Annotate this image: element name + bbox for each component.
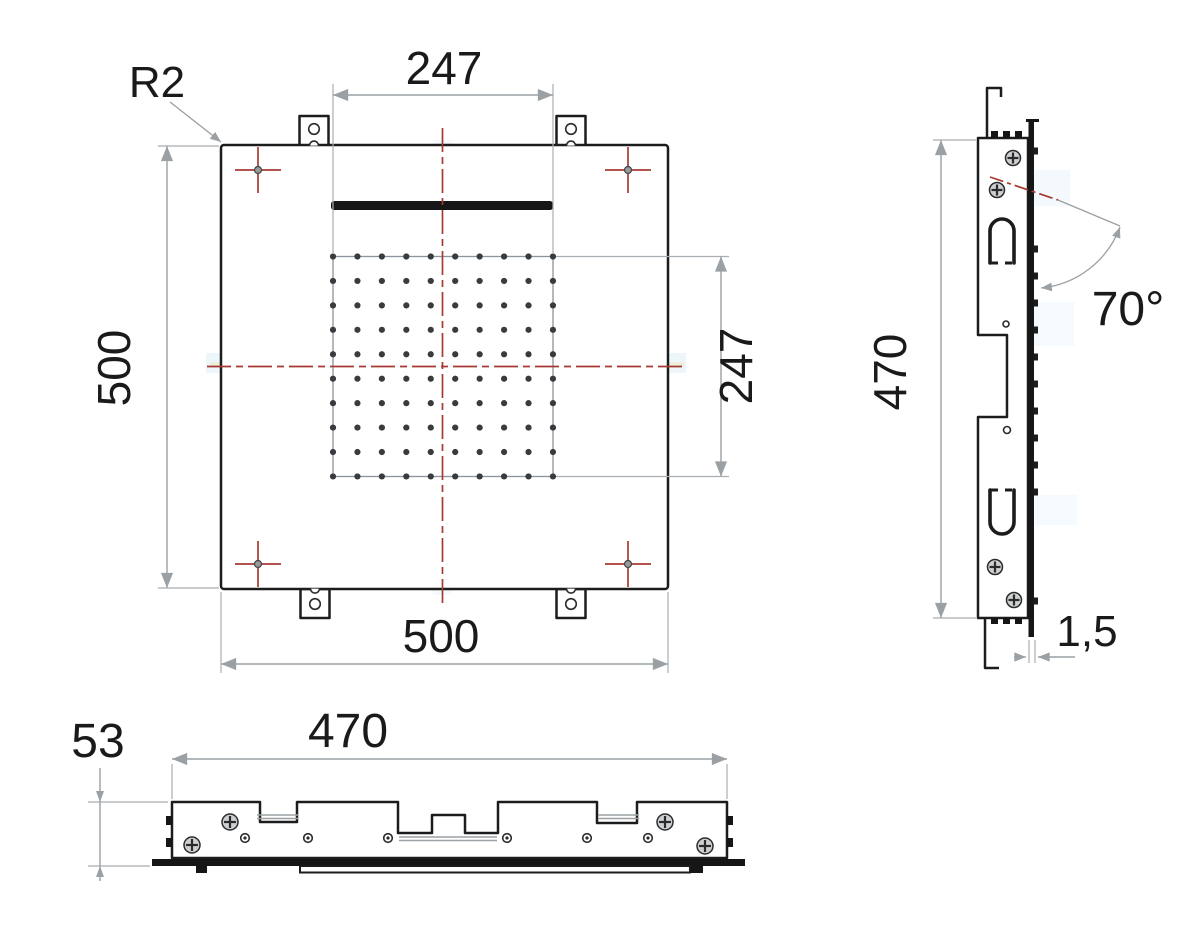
housing-profile xyxy=(172,802,727,858)
spray-angle-label: 70° xyxy=(1092,283,1165,336)
side-nozzle-ticks xyxy=(1034,148,1039,605)
panel-tab xyxy=(196,866,207,873)
bracket-body-profile xyxy=(978,138,1028,618)
artifact-patch xyxy=(1035,495,1077,525)
rivet-icon xyxy=(241,834,250,843)
nozzle-field-height-label: 247 xyxy=(710,328,762,405)
screw-icon xyxy=(184,837,200,853)
dimension-plate-width: 500 xyxy=(221,592,668,673)
profile-depth-label: 53 xyxy=(71,715,124,768)
nozzle-field-width-label: 247 xyxy=(406,42,483,94)
bottom-foot xyxy=(985,618,999,668)
pilot-hole xyxy=(1004,427,1011,434)
dimension-bracket-height: 470 xyxy=(864,140,976,618)
rivet-icon xyxy=(304,834,313,843)
dimension-bracket-width: 470 xyxy=(172,705,727,799)
front-view: R2 247 500 500 247 xyxy=(88,42,762,673)
screw-icon xyxy=(988,560,1003,575)
rivet-icon xyxy=(644,834,653,843)
dimension-profile-depth: 53 xyxy=(71,715,168,881)
screw-icon xyxy=(657,814,673,830)
plate-width-label: 500 xyxy=(403,610,480,662)
panel-tab xyxy=(691,866,703,873)
bracket-width-label: 470 xyxy=(308,705,388,758)
dimension-corner-radius: R2 xyxy=(129,58,221,142)
screw-icon xyxy=(697,838,713,854)
rivet-icon xyxy=(503,834,512,843)
bottom-view: 53 470 xyxy=(71,705,745,881)
hanging-hook xyxy=(987,88,1001,137)
panel-thickness-label: 1,5 xyxy=(1056,607,1117,656)
bracket-height-label: 470 xyxy=(864,334,916,411)
rivet-icon xyxy=(384,834,393,843)
face-panel-edge xyxy=(152,859,745,866)
rivet-icon xyxy=(583,834,592,843)
spray-panel-top-lip xyxy=(1026,119,1039,122)
plate-height-label: 500 xyxy=(88,330,140,407)
screw-icon xyxy=(222,814,238,830)
drawing-page: R2 247 500 500 247 xyxy=(0,0,1204,928)
spray-panel-edge xyxy=(1029,121,1035,637)
screw-icon xyxy=(990,183,1005,198)
dimension-plate-height: 500 xyxy=(88,146,219,588)
screw-icon xyxy=(1006,151,1021,166)
pilot-hole xyxy=(1003,321,1009,327)
corner-radius-label: R2 xyxy=(129,58,185,107)
recessed-sprayer-lip xyxy=(300,866,690,873)
shower-head-technical-drawing: R2 247 500 500 247 xyxy=(0,0,1204,928)
screw-icon xyxy=(1007,593,1022,608)
side-view: 70° 470 1,5 xyxy=(864,88,1164,668)
